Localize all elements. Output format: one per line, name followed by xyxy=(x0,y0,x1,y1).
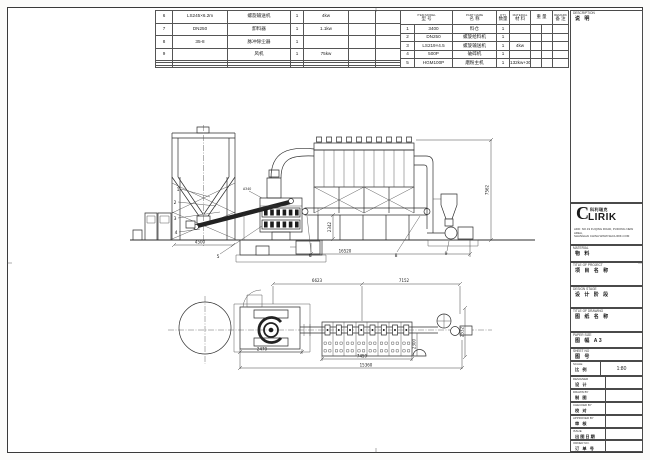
callout-8: 8 xyxy=(395,253,398,259)
cyclone-collector xyxy=(433,194,457,226)
dim-filter-depth: 2300 xyxy=(412,338,417,349)
dim-elev-total: 16520 xyxy=(339,249,352,254)
mill-main-unit xyxy=(236,170,326,262)
callout-5: 5 xyxy=(217,254,220,260)
frame-marks xyxy=(7,7,643,453)
callout-6: 6 xyxy=(309,253,312,259)
filter-screw-conveyor xyxy=(305,208,427,215)
dim-right-depth: 2532 xyxy=(460,326,465,337)
technical-drawing: 7562 2342 16520 4500 A340 1 2 3 4 5 6 8 … xyxy=(0,0,650,460)
elevation-view: 7562 2342 16520 4500 A340 1 2 3 4 5 6 8 … xyxy=(130,125,535,262)
callout-3: 3 xyxy=(174,216,177,222)
drawing-sheet: { "tables": { "left": { "rows": [ {"no":… xyxy=(0,0,650,460)
dim-plan-total: 15360 xyxy=(360,363,373,368)
dim-mill-width: 2470 xyxy=(257,347,268,352)
storage-silo xyxy=(172,125,235,246)
dim-filter-height: 7562 xyxy=(485,184,490,195)
dim-plan-right: 7152 xyxy=(399,278,410,283)
dim-plan-left: 6623 xyxy=(312,278,323,283)
bag-filter xyxy=(302,137,430,240)
cyclone-fan-footprint xyxy=(437,314,472,336)
mill-footprint xyxy=(234,290,310,352)
label-inlet: A340 xyxy=(243,187,251,191)
dim-filter-width: 7459 xyxy=(357,354,368,359)
blower-fan xyxy=(428,227,478,246)
control-cabinets xyxy=(133,213,171,240)
callout-4: 4 xyxy=(175,230,178,236)
plan-view: 6623 7152 2470 7459 15360 2300 2532 xyxy=(168,278,492,370)
callout-9: 9 xyxy=(445,251,448,257)
callout-2: 2 xyxy=(174,200,177,206)
mill-outlet-duct xyxy=(271,148,314,178)
dim-silo-width: 4500 xyxy=(195,240,206,245)
dim-conveyor-height: 2342 xyxy=(327,221,332,232)
callout-1: 1 xyxy=(177,187,180,193)
